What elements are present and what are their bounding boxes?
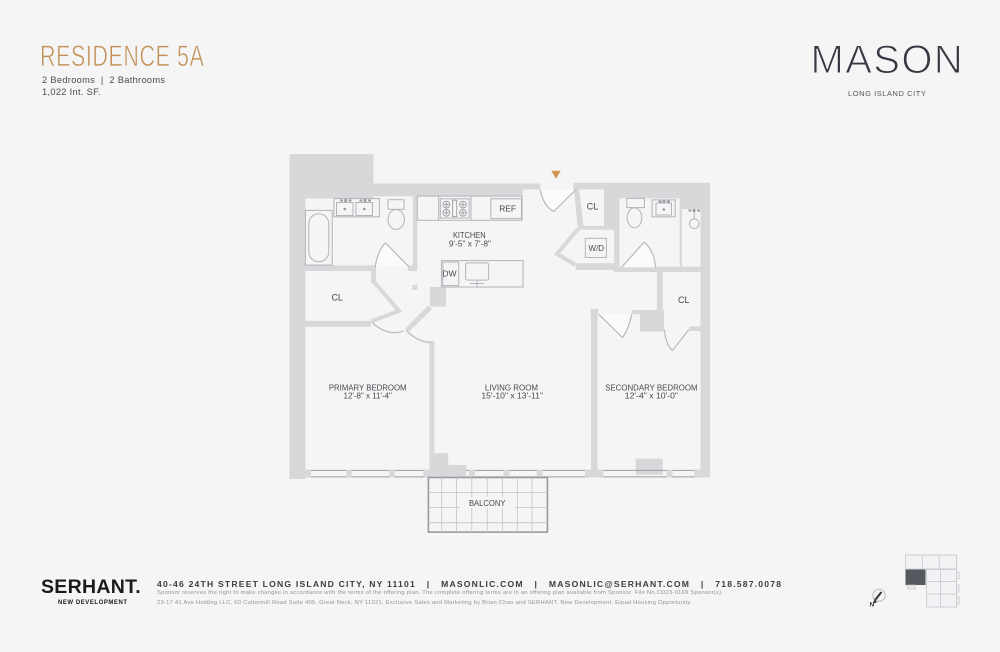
- svg-text:W/D: W/D: [589, 244, 605, 253]
- svg-text:CL: CL: [678, 295, 690, 305]
- svg-text:N: N: [870, 602, 875, 609]
- svg-text:DW: DW: [443, 269, 457, 279]
- svg-text:CL: CL: [331, 293, 343, 303]
- svg-text:12'-4" x 10'-0": 12'-4" x 10'-0": [625, 392, 678, 401]
- svg-text:BALCONY: BALCONY: [469, 498, 506, 508]
- svg-text:15'-10" x 13'-11": 15'-10" x 13'-11": [481, 392, 543, 401]
- svg-text:CL: CL: [587, 202, 599, 212]
- svg-text:9'-5" x 7'-8": 9'-5" x 7'-8": [449, 239, 491, 248]
- svg-text:REF: REF: [499, 204, 516, 214]
- svg-text:12'-8" x 11'-4": 12'-8" x 11'-4": [344, 392, 392, 401]
